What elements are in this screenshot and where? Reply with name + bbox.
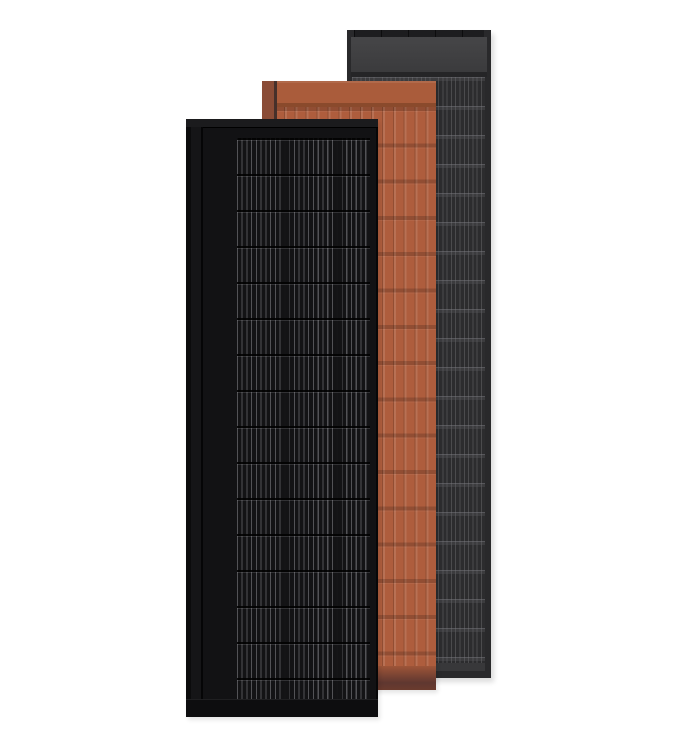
anthracite-top-rail [354,30,484,37]
black-bottom-rail [186,699,378,717]
solar-panel-black [186,119,378,717]
black-top-rail [186,119,378,128]
black-cell-grid [237,138,370,700]
anthracite-header-band [351,37,487,72]
black-left-frame [186,127,203,700]
product-stage: Product render of three overlapping rect… [0,0,684,748]
scene-description: Product render of three overlapping rect… [0,0,1,1]
terracotta-header-band [262,81,436,103]
